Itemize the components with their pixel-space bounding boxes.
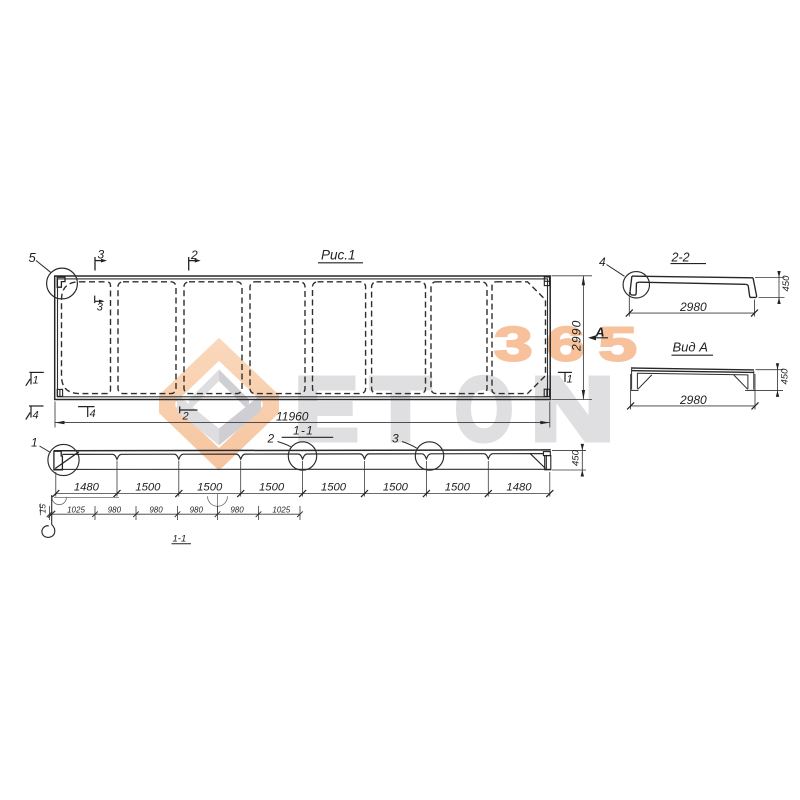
svg-text:980: 980 — [149, 506, 163, 515]
svg-text:2980: 2980 — [679, 393, 707, 407]
svg-text:980: 980 — [108, 506, 122, 515]
svg-text:1025: 1025 — [272, 506, 290, 515]
svg-text:1: 1 — [567, 374, 573, 386]
svg-text:5: 5 — [29, 250, 37, 265]
svg-text:1500: 1500 — [321, 482, 347, 494]
svg-text:3: 3 — [392, 432, 399, 446]
svg-text:11960: 11960 — [276, 410, 309, 424]
svg-text:1480: 1480 — [506, 482, 532, 494]
svg-text:4: 4 — [90, 408, 96, 420]
svg-text:1025: 1025 — [67, 506, 85, 515]
svg-text:450: 450 — [781, 275, 792, 292]
svg-text:450: 450 — [571, 449, 582, 466]
svg-text:450: 450 — [780, 368, 791, 385]
svg-text:1480: 1480 — [74, 482, 100, 494]
svg-text:2: 2 — [182, 411, 189, 423]
svg-text:1500: 1500 — [259, 482, 285, 494]
svg-text:Рис.1: Рис.1 — [321, 248, 356, 263]
svg-text:2980: 2980 — [679, 300, 707, 314]
svg-text:4: 4 — [33, 410, 39, 422]
svg-text:3: 3 — [98, 248, 105, 262]
svg-text:15: 15 — [38, 504, 48, 514]
svg-text:2990: 2990 — [570, 320, 584, 353]
svg-text:1-1: 1-1 — [173, 534, 187, 545]
svg-text:3: 3 — [97, 302, 104, 314]
svg-text:4: 4 — [599, 255, 606, 269]
svg-text:1: 1 — [31, 436, 38, 450]
svg-text:O: O — [455, 360, 513, 460]
svg-text:2: 2 — [267, 432, 275, 446]
svg-text:Вид А: Вид А — [673, 340, 708, 355]
svg-text:1-1: 1-1 — [293, 424, 314, 438]
svg-text:1: 1 — [33, 375, 39, 387]
svg-text:2: 2 — [190, 248, 198, 262]
svg-text:980: 980 — [230, 506, 244, 515]
svg-text:1500: 1500 — [445, 482, 471, 494]
svg-text:1500: 1500 — [135, 482, 161, 494]
svg-text:2-2: 2-2 — [671, 251, 690, 265]
svg-text:1500: 1500 — [197, 482, 223, 494]
svg-text:T: T — [371, 360, 431, 460]
svg-text:1500: 1500 — [383, 482, 409, 494]
svg-text:980: 980 — [190, 506, 204, 515]
